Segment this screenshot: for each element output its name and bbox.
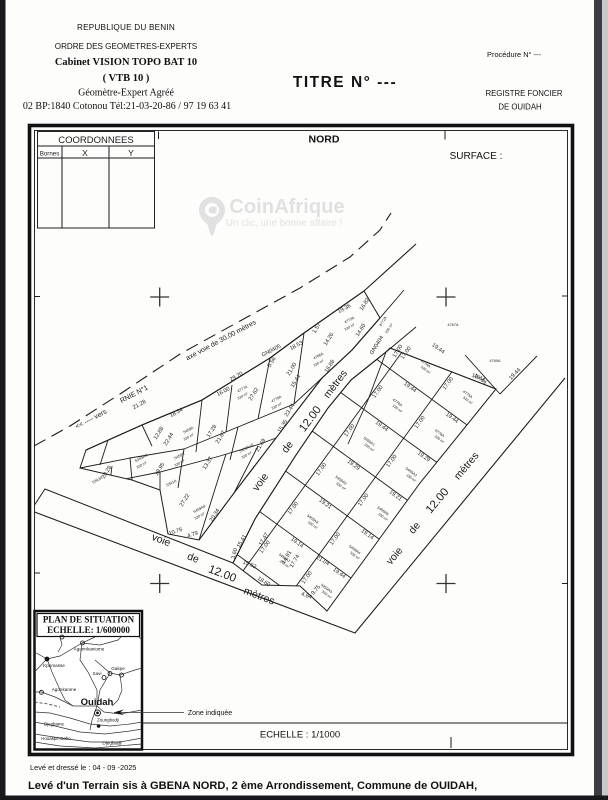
svg-text:COORDONNEES: COORDONNEES [58,135,133,146]
svg-text:PLAN DE SITUATION: PLAN DE SITUATION [43,615,135,625]
svg-text:Djegbame: Djegbame [44,722,65,727]
svg-text:ECHELLE : 1/1000: ECHELLE : 1/1000 [260,730,340,741]
svg-text:NORD: NORD [309,134,340,146]
svg-text:Levé d'un Terrain sis à GBENA: Levé d'un Terrain sis à GBENA NORD, 2 èm… [28,780,477,792]
svg-text:( VTB 10 ): ( VTB 10 ) [103,73,150,84]
svg-text:Houakpé-Daho: Houakpé-Daho [41,736,71,741]
svg-text:Agarinkaniome: Agarinkaniome [74,647,105,652]
svg-text:REPUBLIQUE DU BENIN: REPUBLIQUE DU BENIN [77,23,175,32]
svg-text:Zone indiquée: Zone indiquée [188,710,232,717]
svg-text:4767A: 4767A [448,323,459,327]
svg-text:Procédure N° ---: Procédure N° --- [487,50,541,59]
svg-text:SURFACE :: SURFACE : [450,151,503,162]
svg-text:Kpomasse: Kpomasse [43,663,65,668]
svg-text:Cabinet VISION TOPO BAT 10: Cabinet VISION TOPO BAT 10 [55,57,197,68]
svg-text:X: X [82,148,88,158]
svg-text:ORDRE DES GEOMETRES-EXPERTS: ORDRE DES GEOMETRES-EXPERTS [55,42,198,51]
svg-text:Un clic, une bonne affaire !: Un clic, une bonne affaire ! [226,218,342,229]
svg-text:Géomètre-Expert Agréé: Géomètre-Expert Agréé [78,88,174,99]
svg-text:CoinAfrique: CoinAfrique [229,196,345,218]
svg-text:DE OUIDAH: DE OUIDAH [498,103,541,112]
svg-text:Bornes: Bornes [40,151,60,158]
svg-text:Levé et dressé le : 04 - 09 -2: Levé et dressé le : 04 - 09 -2025 [30,763,136,772]
svg-text:Zoungbodji: Zoungbodji [97,718,119,723]
svg-text:Djegbadji: Djegbadji [102,741,121,746]
svg-text:Savi: Savi [93,671,102,676]
svg-text:02 BP:1840 Cotonou Tél:21-03-2: 02 BP:1840 Cotonou Tél:21-03-20-86 / 97 … [23,101,231,112]
svg-text:4769A: 4769A [490,359,501,363]
svg-text:Agonkanme: Agonkanme [52,687,77,692]
svg-text:ECHELLE: 1/600000: ECHELLE: 1/600000 [47,625,130,635]
svg-text:Ouidah: Ouidah [81,697,114,708]
svg-text:Gakpe: Gakpe [111,666,125,671]
svg-text:Y: Y [128,148,134,158]
svg-text:TITRE N° ---: TITRE N° --- [293,74,397,91]
svg-text:REGISTRE FONCIER: REGISTRE FONCIER [485,89,562,98]
